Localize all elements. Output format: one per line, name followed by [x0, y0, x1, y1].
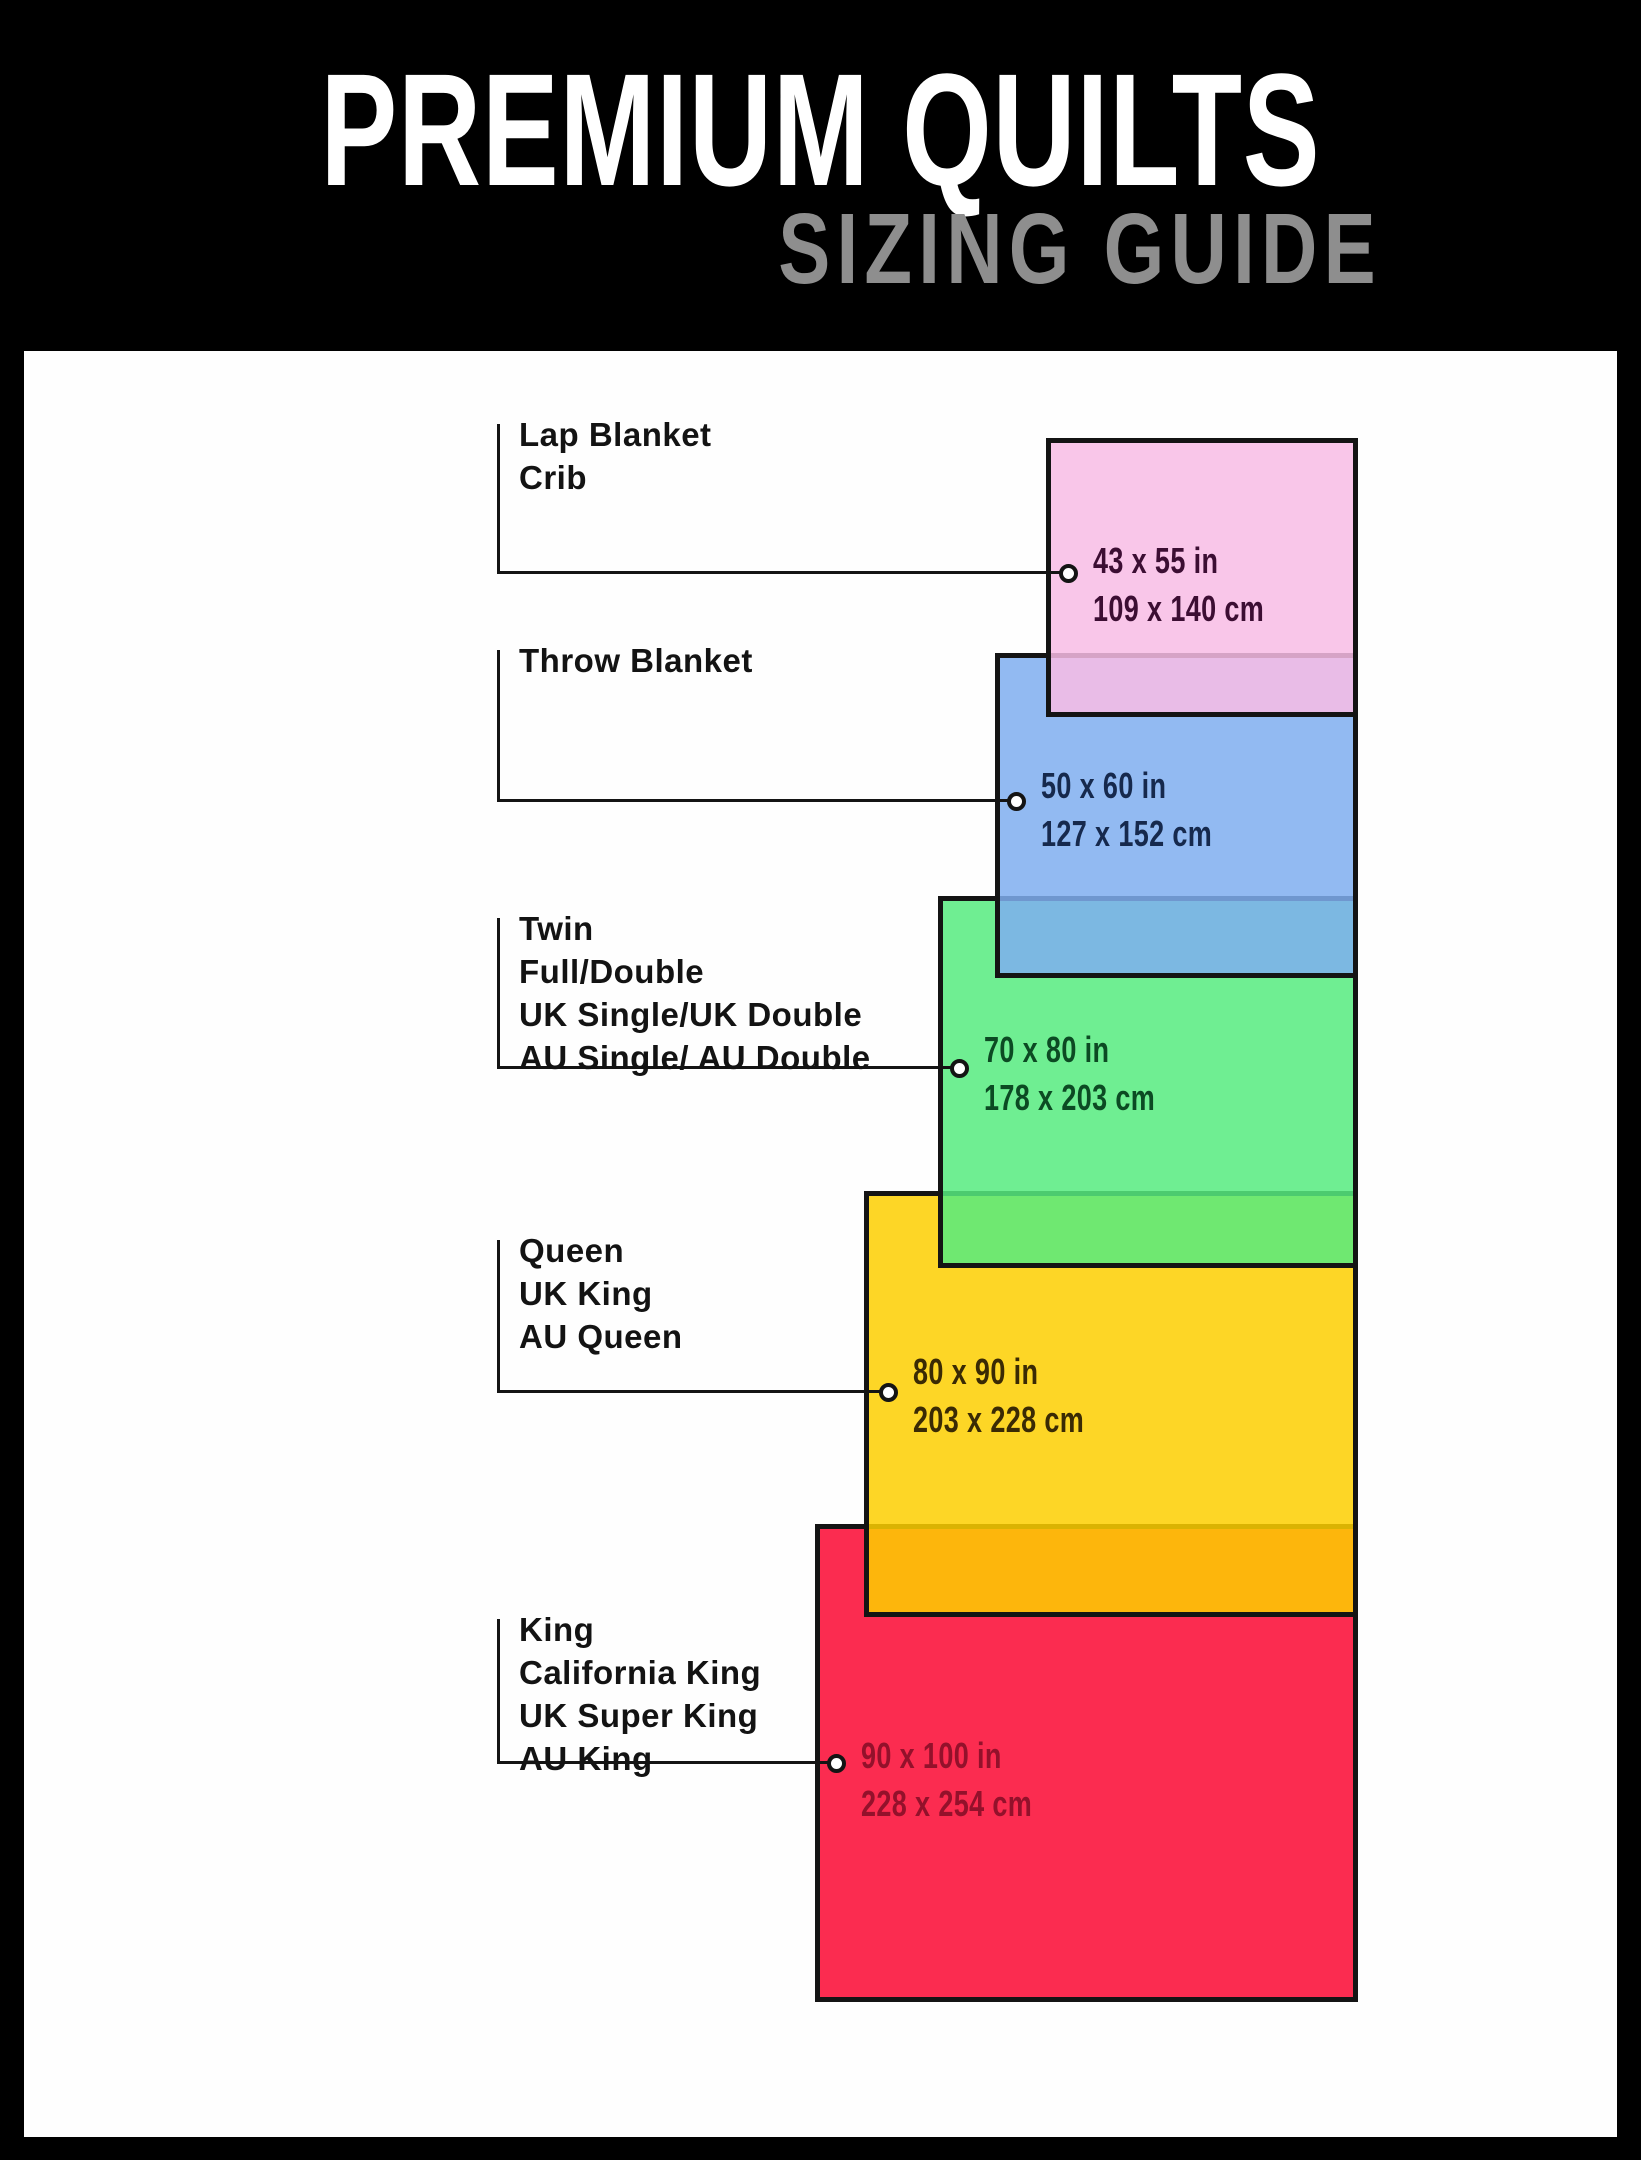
dimension-inches: 90 x 100 in [861, 1732, 1032, 1780]
size-label-line: King [519, 1608, 761, 1651]
size-label-line: Twin [519, 907, 871, 950]
size-label-line: AU Single/ AU Double [519, 1036, 871, 1079]
dimension-inches: 80 x 90 in [913, 1348, 1084, 1396]
dimension-text-queen: 80 x 90 in 203 x 228 cm [913, 1348, 1084, 1444]
dimension-cm: 203 x 228 cm [913, 1396, 1084, 1444]
dimension-cm: 228 x 254 cm [861, 1780, 1032, 1828]
diagram-canvas: Lap Blanket Crib Throw Blanket Twin Full… [24, 351, 1617, 2137]
size-label-line: Full/Double [519, 950, 871, 993]
size-label-line: Crib [519, 456, 712, 499]
size-label-line: AU King [519, 1737, 761, 1780]
dimension-cm: 109 x 140 cm [1093, 585, 1264, 633]
size-label-twin: Twin Full/Double UK Single/UK Double AU … [519, 907, 871, 1079]
leader-dot-icon [827, 1754, 846, 1773]
size-label-line: UK Single/UK Double [519, 993, 871, 1036]
header: PREMIUM QUILTS SIZING GUIDE [0, 0, 1641, 351]
size-label-line: AU Queen [519, 1315, 683, 1358]
size-label-lap-blanket-crib: Lap Blanket Crib [519, 413, 712, 499]
leader-dot-icon [879, 1383, 898, 1402]
size-label-line: UK Super King [519, 1694, 761, 1737]
size-label-line: Throw Blanket [519, 639, 753, 682]
page-title: PREMIUM QUILTS [0, 50, 1641, 210]
size-label-line: Queen [519, 1229, 683, 1272]
dimension-inches: 43 x 55 in [1093, 537, 1264, 585]
page-subtitle: SIZING GUIDE [608, 199, 1382, 299]
page-subtitle-text: SIZING GUIDE [778, 199, 1382, 299]
size-label-queen: Queen UK King AU Queen [519, 1229, 683, 1358]
size-label-throw-blanket: Throw Blanket [519, 639, 753, 682]
leader-dot-icon [950, 1059, 969, 1078]
dimension-text-king: 90 x 100 in 228 x 254 cm [861, 1732, 1032, 1828]
dimension-inches: 70 x 80 in [984, 1026, 1155, 1074]
dimension-text-twin: 70 x 80 in 178 x 203 cm [984, 1026, 1155, 1122]
leader-dot-icon [1059, 564, 1078, 583]
dimension-cm: 127 x 152 cm [1041, 810, 1212, 858]
size-label-line: California King [519, 1651, 761, 1694]
size-label-line: UK King [519, 1272, 683, 1315]
size-label-king: King California King UK Super King AU Ki… [519, 1608, 761, 1780]
dimension-text-throw-blanket: 50 x 60 in 127 x 152 cm [1041, 762, 1212, 858]
dimension-cm: 178 x 203 cm [984, 1074, 1155, 1122]
size-label-line: Lap Blanket [519, 413, 712, 456]
page-title-text: PREMIUM QUILTS [321, 50, 1321, 210]
leader-dot-icon [1007, 792, 1026, 811]
dimension-text-lap-blanket-crib: 43 x 55 in 109 x 140 cm [1093, 537, 1264, 633]
dimension-inches: 50 x 60 in [1041, 762, 1212, 810]
page-background: PREMIUM QUILTS SIZING GUIDE Lap Blanket … [0, 0, 1641, 2160]
